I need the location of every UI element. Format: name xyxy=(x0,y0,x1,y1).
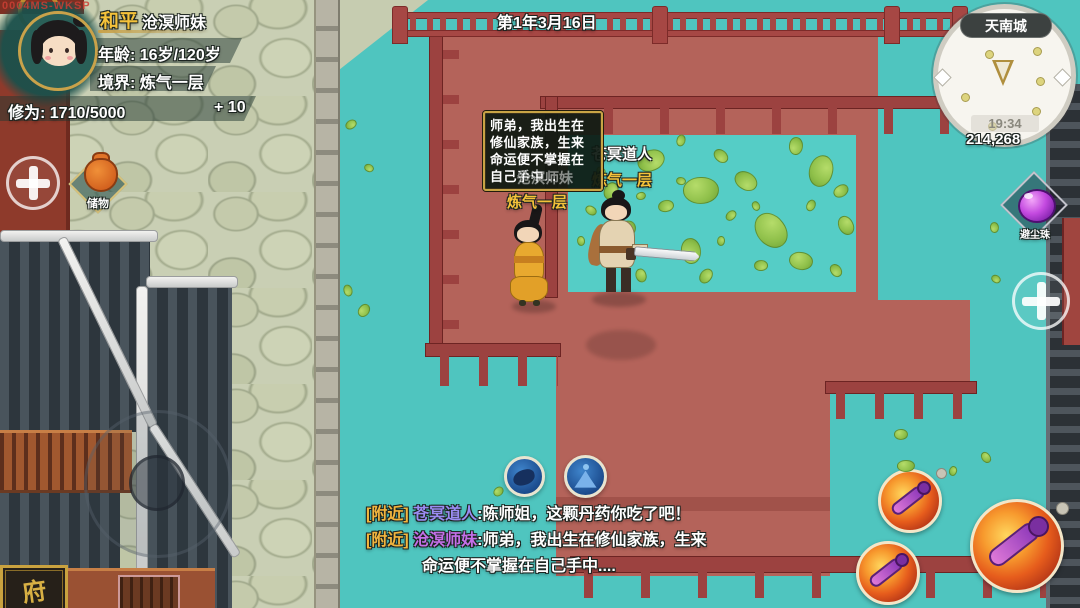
lily-pad xyxy=(491,484,505,498)
platform-left-posts xyxy=(443,50,459,340)
soft-shadow xyxy=(586,330,656,360)
platform-bottomleft-posts xyxy=(440,356,558,386)
player-marker-inner xyxy=(996,62,1010,80)
meditation-skill-icon xyxy=(583,464,589,470)
lily-pad xyxy=(577,236,586,247)
game-time: 19:34 xyxy=(988,116,1021,131)
chat-message: [附近] 苍冥道人:陈师姐，这颗丹药你吃了吧！ xyxy=(366,502,966,528)
platform-bottomleft-railing xyxy=(425,343,561,357)
player-realm: 境界: 炼气一层 xyxy=(98,69,204,93)
npc-character[interactable] xyxy=(588,190,704,302)
chat-panel[interactable]: [附近] 苍冥道人:陈师姐，这颗丹药你吃了吧！ [附近] 沧溟师妹:师弟，我出生… xyxy=(366,502,966,580)
beast-skill-icon xyxy=(512,467,537,487)
map-dot xyxy=(1036,77,1045,86)
minimap-location: 天南城 xyxy=(985,16,1027,36)
watermark: 0004MS-WKSP xyxy=(2,0,91,12)
lily-pad xyxy=(355,302,372,320)
chat-message-continuation: 命运便不掌握在自己手中.... xyxy=(366,554,966,580)
stone-border xyxy=(314,0,340,608)
chat-speaker: 苍冥道人 xyxy=(413,506,477,523)
far-right-railing xyxy=(1062,218,1080,345)
bubble-line: 修仙家族，生来 xyxy=(490,134,596,151)
lily-pad xyxy=(948,465,959,477)
chat-channel: [附近] xyxy=(366,532,409,549)
game-screen: 第1年3月16日 府 苍冥道人 炼气一层 xyxy=(0,0,1080,608)
fence-post xyxy=(392,6,408,44)
map-dot xyxy=(1033,47,1042,56)
expand-right-button[interactable] xyxy=(1012,272,1070,330)
expand-left-button[interactable] xyxy=(6,156,60,210)
bag-icon xyxy=(84,158,118,192)
player-name-label: 沧溟师妹 xyxy=(505,168,585,188)
lily-pad xyxy=(979,450,993,465)
currency-amount: 214,268 xyxy=(966,131,1020,148)
chat-message: [附近] 沧溟师妹:师弟，我出生在修仙家族，生来 xyxy=(366,528,966,554)
player-age: 年龄: 16岁/120岁 xyxy=(98,41,221,65)
leaf-decor xyxy=(897,460,915,472)
button-ring-detail xyxy=(936,468,947,479)
platform-right-arm xyxy=(830,300,970,384)
right-arm-posts xyxy=(836,393,966,419)
roof-ridge xyxy=(146,276,238,288)
lily-pad xyxy=(990,273,1003,285)
bubble-line: 师弟，我出生在 xyxy=(490,117,596,134)
pearl-label: 避尘珠 xyxy=(1010,226,1060,241)
lily-pad xyxy=(989,221,999,232)
sword-blade xyxy=(634,246,701,262)
name-flourish xyxy=(98,30,210,33)
lily-pad xyxy=(363,162,375,173)
bubble-line: 命运便不掌握在 xyxy=(490,151,596,168)
window-lattice xyxy=(118,575,180,608)
joystick-knob[interactable] xyxy=(129,455,185,511)
meditation-skill-button[interactable] xyxy=(564,455,607,498)
fence-post xyxy=(884,6,900,44)
player-character xyxy=(506,204,558,308)
chat-text: 命运便不掌握在自己手中.... xyxy=(422,558,616,575)
chat-text: 陈师姐，这颗丹药你吃了吧！ xyxy=(482,506,690,523)
time-box: 19:34 xyxy=(971,115,1039,132)
beast-skill-button[interactable] xyxy=(504,456,545,497)
avatar[interactable] xyxy=(18,11,98,91)
chat-speaker: 沧溟师妹 xyxy=(413,532,477,549)
lily-pad xyxy=(342,284,354,298)
roof-ridge xyxy=(0,230,158,242)
storage-label: 储物 xyxy=(74,195,122,211)
map-dot xyxy=(961,93,970,102)
player-name: 和平 xyxy=(100,6,138,33)
player-realm-label: 炼气一层 xyxy=(490,191,584,212)
cultivation-gain: + 10 xyxy=(214,99,246,117)
chat-channel: [附近] xyxy=(366,506,409,523)
top-fence xyxy=(397,12,963,38)
lily-pad xyxy=(344,118,359,132)
sword-pommel xyxy=(1028,516,1049,537)
platform-right xyxy=(856,135,878,302)
lily-pad xyxy=(894,429,908,440)
fence-post xyxy=(652,6,668,44)
pearl-shine xyxy=(1024,193,1033,199)
chat-text: 师弟，我出生在修仙家族，生来 xyxy=(482,532,706,549)
attack-button-main[interactable] xyxy=(970,499,1064,593)
button-ring-detail xyxy=(1056,502,1069,515)
mansion-sign: 府 xyxy=(0,565,68,608)
game-date: 第1年3月16日 xyxy=(497,9,597,33)
sword-pommel xyxy=(917,481,931,495)
meditation-skill-icon xyxy=(574,471,596,488)
minimap-banner: 天南城 xyxy=(960,13,1052,38)
player-cultivation: 修为: 1710/5000 xyxy=(8,99,125,123)
map-dot xyxy=(985,50,994,59)
platform-left-railing xyxy=(429,36,443,348)
